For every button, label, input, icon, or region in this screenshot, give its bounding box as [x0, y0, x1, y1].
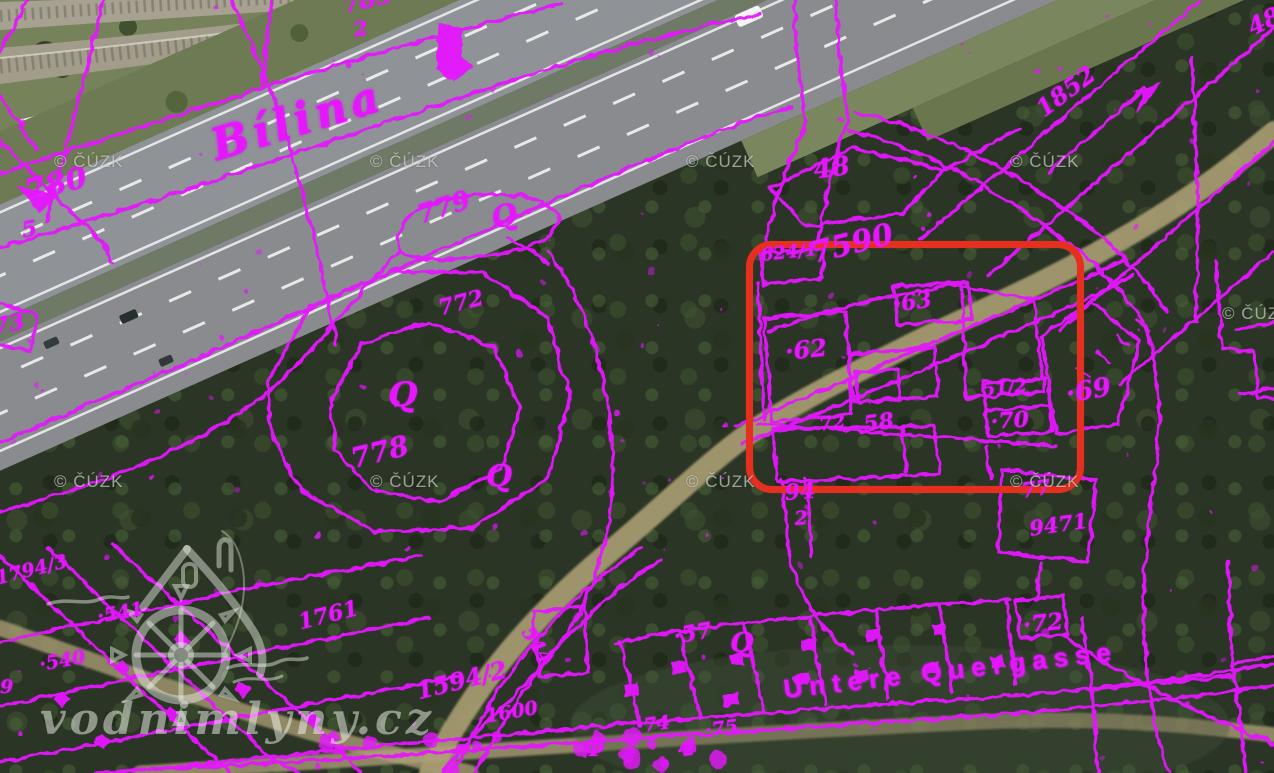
cuzk-watermark: © ČÚZK — [54, 472, 124, 492]
map-symbol: Φ — [584, 736, 605, 760]
highlight-rectangle — [746, 241, 1084, 493]
parcel-label: 73 — [0, 311, 26, 338]
parcel-label: 2 — [794, 509, 809, 529]
parcel-label: 51/2 — [982, 377, 1028, 400]
cuzk-watermark: © ČÚZK — [1222, 304, 1274, 324]
parcel-label: 94 — [784, 480, 816, 504]
cuzk-watermark: © ČÚZK — [686, 472, 756, 492]
site-watermark-label: vodnimlyny.cz — [40, 694, 435, 745]
parcel-label: ·70 — [990, 408, 1030, 433]
map-symbol: Q — [388, 378, 418, 412]
parcel-label: ·62 — [784, 336, 828, 364]
map-symbol: Q — [730, 630, 754, 657]
parcel-label: 58 — [862, 410, 895, 436]
parcel-label: ·69 — [1064, 374, 1113, 407]
parcel-label: 72 — [818, 412, 847, 434]
parcel-label: ·57 — [672, 619, 714, 647]
cuzk-watermark: © ČÚZK — [1010, 472, 1080, 492]
cuzk-watermark: © ČÚZK — [370, 152, 440, 172]
parcel-label: ·2 — [676, 742, 696, 761]
cuzk-watermark: © ČÚZK — [54, 152, 124, 172]
map-symbol: Q — [486, 462, 512, 492]
cuzk-watermark: © ČÚZK — [1010, 152, 1080, 172]
cuzk-watermark: © ČÚZK — [686, 152, 756, 172]
parcel-label: ·74 — [636, 713, 671, 736]
parcel-label: 48 — [812, 153, 851, 184]
parcel-label: 9 — [0, 678, 13, 697]
cuzk-watermark: © ČÚZK — [370, 472, 440, 492]
parcel-label: ·72 — [1022, 610, 1064, 637]
parcel-label: ·75 — [704, 717, 739, 740]
map-canvas[interactable]: BílinaUntere Quergasse780573783277977277… — [0, 0, 1274, 773]
parcel-label: ·63 — [892, 289, 933, 316]
